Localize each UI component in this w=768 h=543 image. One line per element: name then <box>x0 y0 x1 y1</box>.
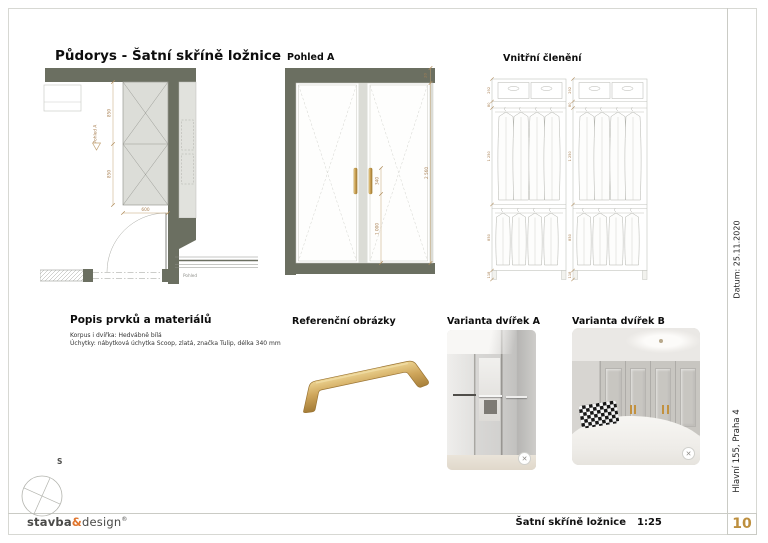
variant-a-photo: ✕ <box>447 330 536 470</box>
dim-20: 20 <box>423 73 428 78</box>
drawing-sheet: Půdorys - Šatní skříně ložnice Pohled A … <box>0 0 768 543</box>
title-block-divider <box>727 8 728 513</box>
logo-ampersand: & <box>72 515 82 529</box>
svg-text:118: 118 <box>568 271 572 279</box>
dim-1000: 1 000 <box>375 223 380 235</box>
door-handle-right <box>369 168 372 194</box>
reference-handle-image <box>288 336 438 416</box>
wardrobe-module-1: 292 80 1 250 850 118 <box>487 77 566 281</box>
door-handle-bar <box>506 396 527 398</box>
svg-text:80: 80 <box>568 102 572 107</box>
svg-text:850: 850 <box>487 233 491 241</box>
gold-handle <box>662 405 664 414</box>
plan-secondary-view-label: Pohled <box>183 273 197 278</box>
materials-title: Popis prvků a materiálů <box>70 314 211 326</box>
logo-light-part: design <box>82 515 121 529</box>
close-icon: ✕ <box>518 452 531 465</box>
plan-view-marker: Pohled A <box>93 125 101 150</box>
sheet-date: Datum: 25.11.2020 <box>733 190 742 330</box>
plan-wall-mass <box>179 218 196 249</box>
variant-b-photo: ✕ <box>572 328 700 465</box>
plan-door-jamb-right <box>162 269 172 282</box>
north-label: S <box>57 457 62 466</box>
svg-text:1 250: 1 250 <box>487 150 491 161</box>
interior-layout-title: Vnitřní členění <box>503 53 581 64</box>
titleblock-scale: 1:25 <box>637 517 662 528</box>
titleblock-drawing-title: Šatní skříně ložnice <box>430 517 626 528</box>
plan-section-marker-lines <box>175 257 258 268</box>
plan-wardrobe <box>123 82 168 205</box>
svg-text:292: 292 <box>568 87 572 94</box>
materials-line-2: Úchytky: nábytková úchytka Scoop, zlatá,… <box>70 340 281 347</box>
elevation-center-stile <box>359 83 368 263</box>
gold-handle <box>634 405 636 414</box>
door-handle-bar <box>453 394 476 396</box>
dim-340: 340 <box>375 177 380 185</box>
floor-plan-drawing: Pohled 850 850 600 <box>40 62 280 292</box>
interior-layout-drawing: 292 80 1 250 850 118 <box>485 74 655 284</box>
gold-handle <box>667 405 669 414</box>
svg-text:850: 850 <box>568 233 572 241</box>
logo-bold-part: stavba <box>27 515 72 529</box>
project-address: Hlavní 155, Praha 4 <box>732 381 742 521</box>
plan-door <box>107 213 166 272</box>
reflected-vanity <box>484 400 496 414</box>
dim-850-bottom: 850 <box>107 170 113 178</box>
lamp-stem <box>659 339 663 343</box>
view-marker-label: Pohled A <box>93 125 99 144</box>
close-icon: ✕ <box>682 447 695 460</box>
wardrobe-module-2: 292 80 1 250 850 118 <box>568 77 647 281</box>
title-block-bottom-line <box>8 513 757 514</box>
dim-850-top: 850 <box>107 109 113 117</box>
sheet-number: 10 <box>727 513 757 535</box>
registered-mark-icon: ® <box>121 516 127 523</box>
variant-b-title: Varianta dvířek B <box>572 316 665 327</box>
svg-text:1 250: 1 250 <box>568 150 572 161</box>
reference-title: Referenční obrázky <box>292 316 396 327</box>
door-handle-bar <box>479 395 502 397</box>
dim-600: 600 <box>141 207 149 213</box>
svg-text:292: 292 <box>487 87 491 94</box>
materials-line-1: Korpus i dvířka: Hedvábně bílá <box>70 332 162 339</box>
dim-2560: 2 560 <box>424 167 429 179</box>
variant-a-title: Varianta dvířek A <box>447 316 540 327</box>
plan-hatched-wall <box>40 270 85 281</box>
door-handle-left <box>354 168 357 194</box>
ceiling-reflection <box>447 330 536 354</box>
plan-opening-axis <box>93 273 162 279</box>
company-logo: stavba&design® <box>27 515 128 529</box>
plan-adjacent-wardrobe <box>179 82 196 218</box>
svg-text:80: 80 <box>487 102 491 107</box>
elevation-drawing: 340 1 000 2 560 20 <box>283 66 438 278</box>
plan-furniture-outline <box>44 85 81 111</box>
svg-text:118: 118 <box>487 271 491 279</box>
gold-handle <box>630 405 632 414</box>
plan-door-jamb-left <box>83 269 93 282</box>
elevation-right-stile <box>430 83 434 263</box>
elevation-title: Pohled A <box>287 52 334 63</box>
